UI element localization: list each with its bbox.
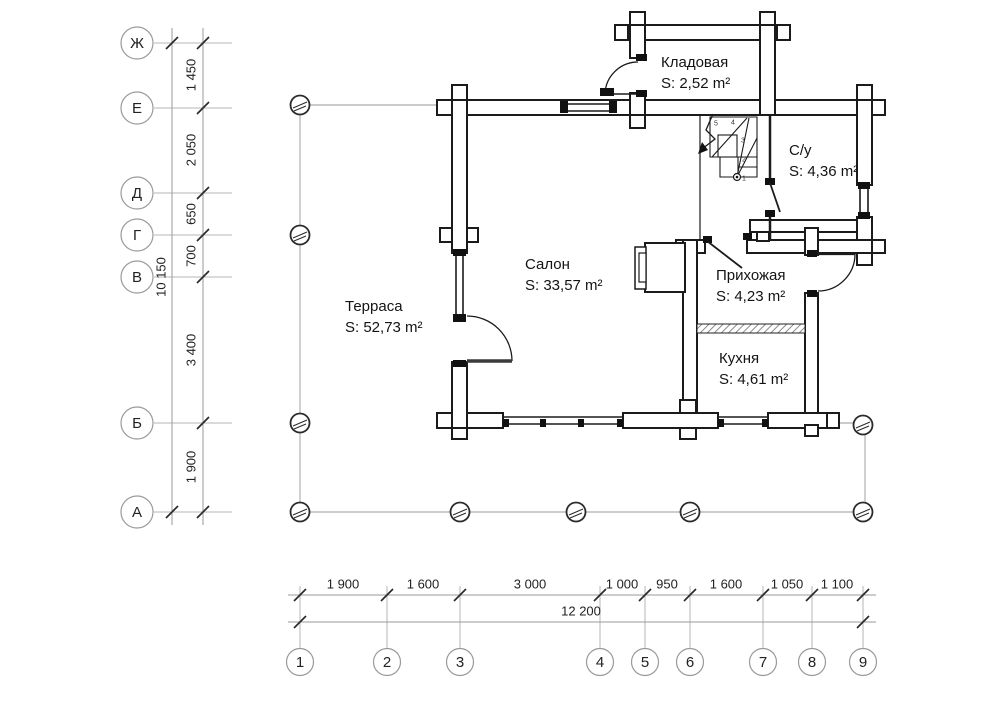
dim-label: 1 900 (327, 577, 360, 592)
room-label-kitchen: Кухня S: 4,61 m² (719, 348, 788, 390)
room-name: С/у (789, 140, 858, 161)
axis-col-label: 3 (443, 645, 477, 679)
room-label-storeroom: Кладовая S: 2,52 m² (661, 52, 730, 94)
dim-label: 1 450 (184, 59, 199, 92)
fireplace (635, 243, 685, 292)
stair-direction-arrow (702, 114, 715, 149)
room-area: S: 4,23 m² (716, 286, 786, 307)
axis-row-label: Е (120, 91, 154, 125)
axis-col-label: 2 (370, 645, 404, 679)
stair-step-number: 5 (714, 121, 718, 128)
room-area: S: 4,36 m² (789, 161, 858, 182)
stair-step-number: 2 (742, 157, 746, 164)
dim-label: 1 000 (606, 577, 639, 592)
stair-step-number: 4 (731, 120, 735, 127)
dim-label: 3 400 (184, 334, 199, 367)
room-name: Прихожая (716, 265, 786, 286)
room-area: S: 33,57 m² (525, 275, 603, 296)
room-label-salon: Салон S: 33,57 m² (525, 254, 603, 296)
room-name: Кладовая (661, 52, 730, 73)
room-name: Кухня (719, 348, 788, 369)
axis-row-label: В (120, 260, 154, 294)
dim-label: 950 (656, 577, 678, 592)
room-area: S: 52,73 m² (345, 317, 423, 338)
door-arc (818, 254, 855, 291)
axis-row-label: Б (120, 406, 154, 440)
dim-label: 1 600 (710, 577, 743, 592)
dim-label: 1 600 (407, 577, 440, 592)
axis-row-label: Д (120, 176, 154, 210)
dim-label: 650 (184, 203, 199, 225)
axis-col-label: 9 (846, 645, 880, 679)
dim-total-label: 10 150 (154, 257, 169, 297)
room-name: Салон (525, 254, 603, 275)
room-name: Терраса (345, 296, 423, 317)
dim-label: 1 050 (771, 577, 804, 592)
dim-label: 700 (184, 245, 199, 267)
dim-label: 1 900 (184, 451, 199, 484)
axis-row-label: Г (120, 218, 154, 252)
stair-step-number: 1 (742, 176, 746, 183)
axis-row-label: А (120, 495, 154, 529)
axis-col-label: 5 (628, 645, 662, 679)
axis-col-label: 7 (746, 645, 780, 679)
dim-label: 2 050 (184, 134, 199, 167)
room-label-hallway: Прихожая S: 4,23 m² (716, 265, 786, 307)
room-area: S: 4,61 m² (719, 369, 788, 390)
room-label-terrace: Терраса S: 52,73 m² (345, 296, 423, 338)
hatched-partition (697, 324, 805, 333)
room-label-bathroom: С/у S: 4,36 m² (789, 140, 858, 182)
dim-total-label: 12 200 (561, 604, 601, 619)
door-arc (467, 316, 512, 361)
staircase (698, 114, 757, 240)
stair-step-number: 3 (741, 138, 745, 145)
axis-col-label: 4 (583, 645, 617, 679)
axis-col-label: 6 (673, 645, 707, 679)
dim-label: 1 100 (821, 577, 854, 592)
dim-label: 3 000 (514, 577, 547, 592)
floor-plan-page: Ж Е Д Г В Б А 1 2 3 4 5 6 7 8 9 1 450 2 … (0, 0, 1000, 707)
room-area: S: 2,52 m² (661, 73, 730, 94)
axis-col-label: 8 (795, 645, 829, 679)
axis-col-label: 1 (283, 645, 317, 679)
axis-row-label: Ж (120, 26, 154, 60)
